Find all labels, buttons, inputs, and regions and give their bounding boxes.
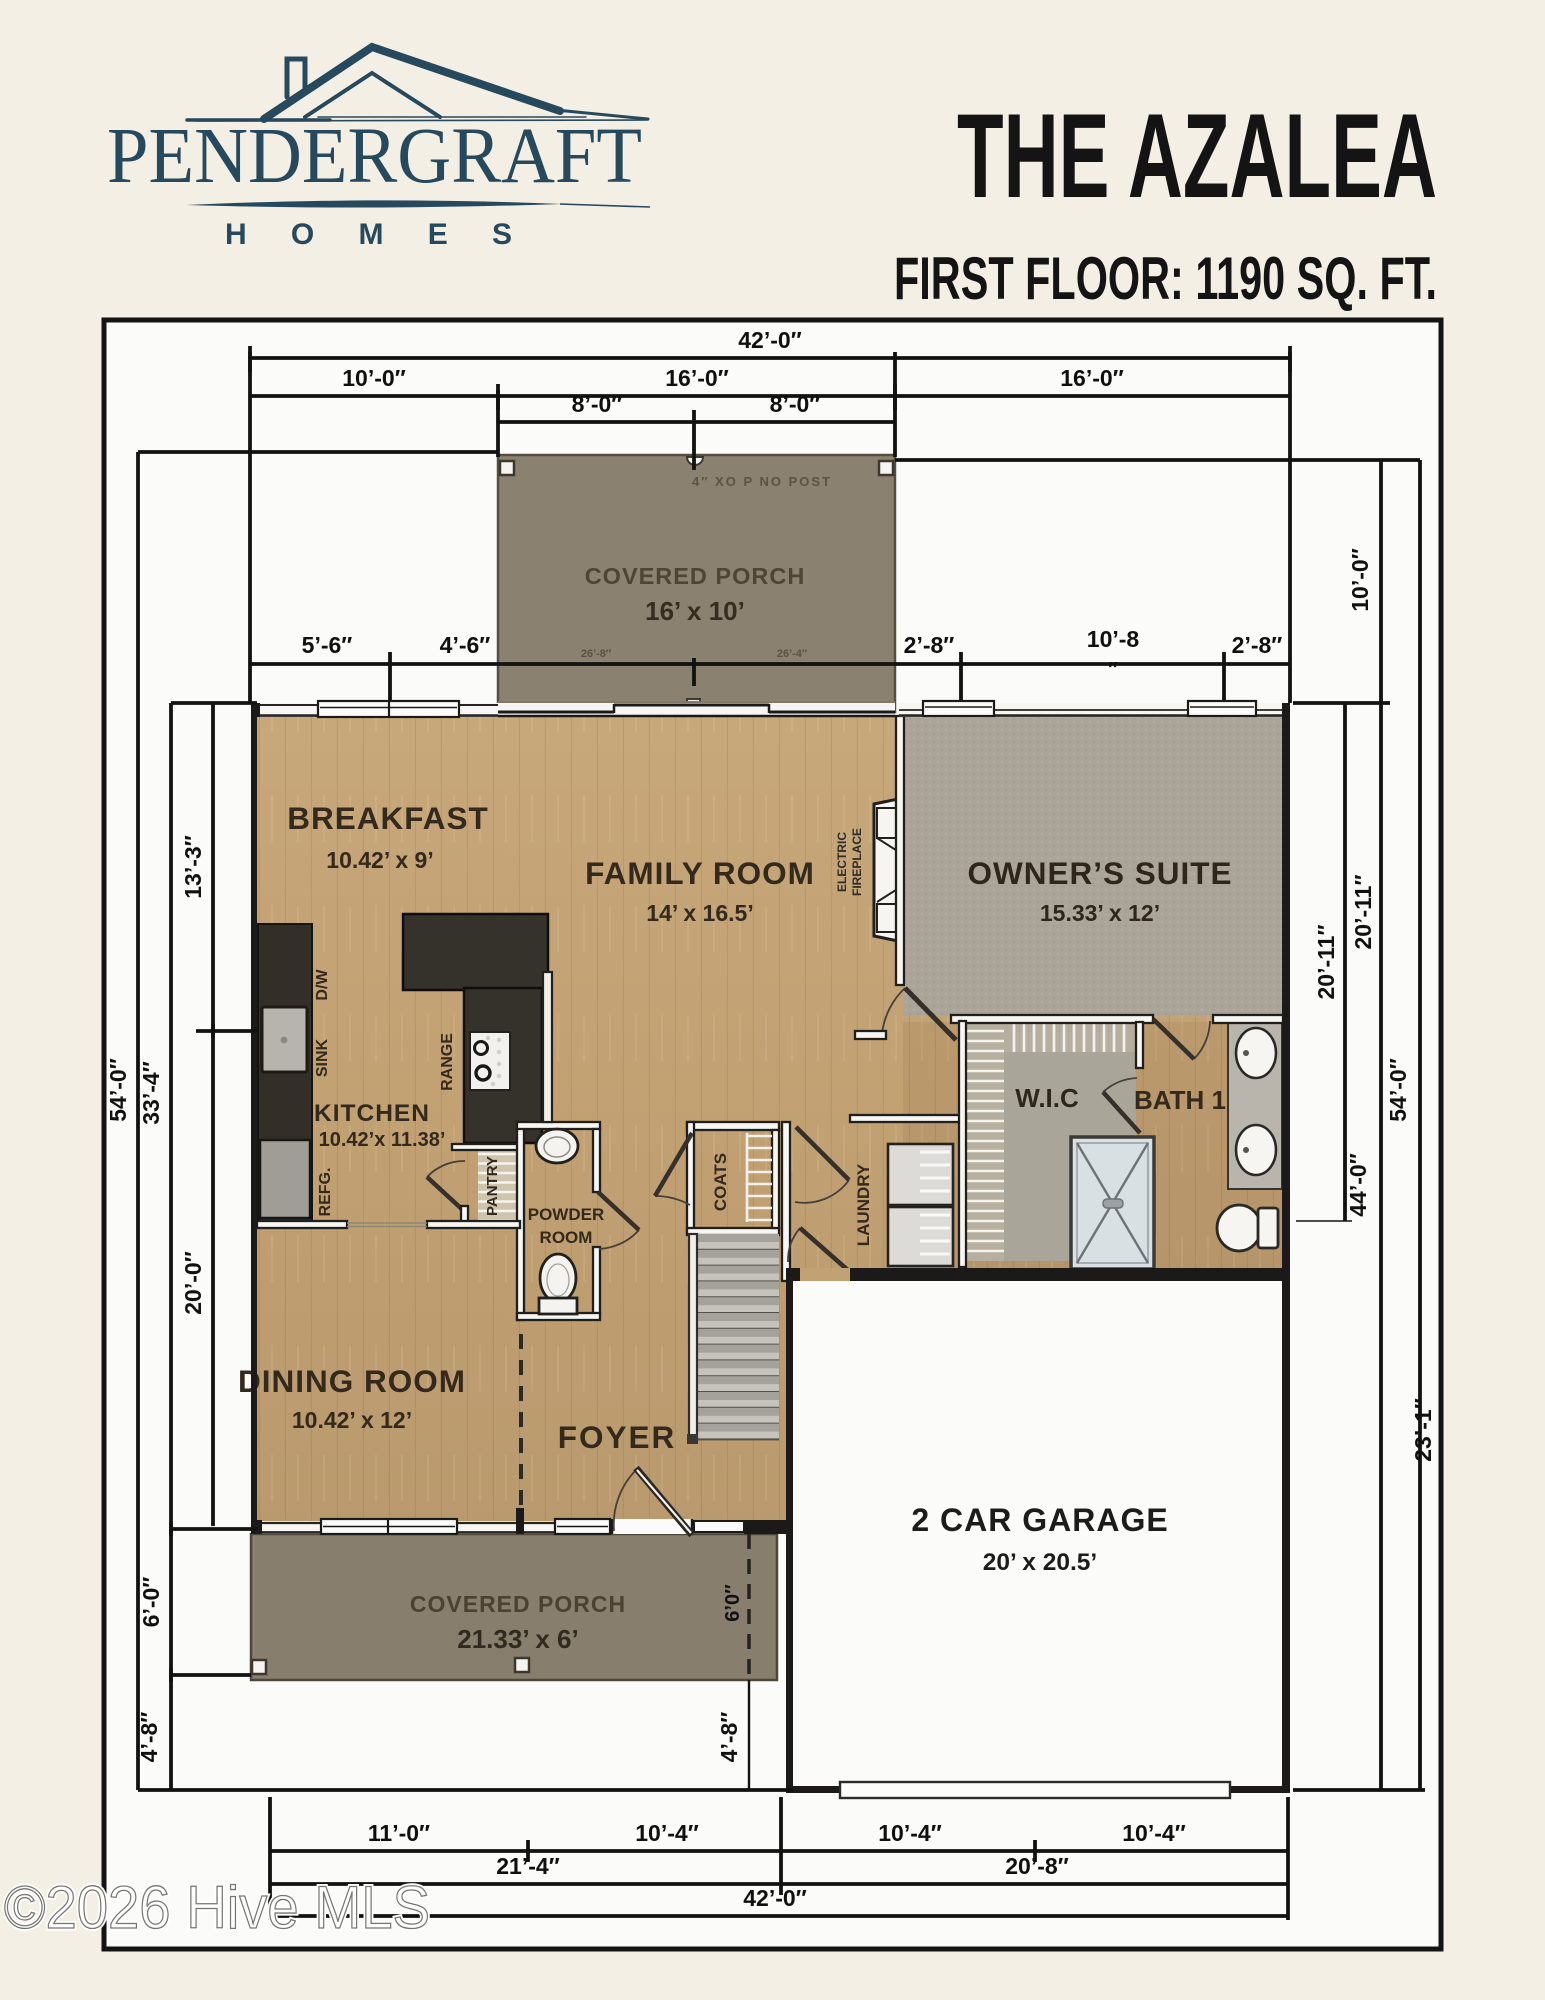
- svg-text:BATH 1: BATH 1: [1134, 1085, 1226, 1115]
- svg-text:FOYER: FOYER: [558, 1419, 677, 1455]
- svg-text:2 CAR GARAGE: 2 CAR GARAGE: [911, 1502, 1168, 1538]
- svg-text:13’-3″: 13’-3″: [180, 835, 206, 898]
- svg-text:ELECTRIC: ELECTRIC: [835, 832, 849, 892]
- svg-text:PENDERGRAFT: PENDERGRAFT: [107, 113, 642, 200]
- svg-text:2’-8″: 2’-8″: [1232, 632, 1283, 658]
- svg-text:10’-0″: 10’-0″: [342, 365, 405, 391]
- svg-text:26’-8″: 26’-8″: [581, 648, 612, 660]
- svg-text:2’-8″: 2’-8″: [904, 632, 955, 658]
- svg-text:4’-8″: 4’-8″: [136, 1712, 162, 1763]
- svg-text:21’-4″: 21’-4″: [496, 1853, 559, 1879]
- svg-text:23’-1″: 23’-1″: [1410, 1398, 1436, 1461]
- svg-text:10’-4″: 10’-4″: [635, 1820, 698, 1846]
- svg-text:4″ XO P NO POST: 4″ XO P NO POST: [692, 474, 832, 489]
- svg-text:54’-0″: 54’-0″: [105, 1058, 131, 1121]
- svg-text:11’-0″: 11’-0″: [368, 1820, 430, 1846]
- svg-text:KITCHEN: KITCHEN: [314, 1100, 430, 1127]
- svg-text:SINK: SINK: [314, 1038, 331, 1077]
- svg-text:20’-8″: 20’-8″: [1005, 1853, 1068, 1879]
- svg-text:10.42’ x 9’: 10.42’ x 9’: [326, 847, 433, 873]
- svg-text:DINING ROOM: DINING ROOM: [238, 1363, 466, 1399]
- svg-text:THE AZALEA: THE AZALEA: [957, 89, 1437, 223]
- svg-text:54’-0″: 54’-0″: [1385, 1058, 1411, 1121]
- svg-text:″: ″: [1108, 659, 1118, 681]
- svg-text:OWNER’S SUITE: OWNER’S SUITE: [967, 855, 1232, 891]
- svg-text:20’-0″: 20’-0″: [180, 1251, 206, 1314]
- svg-text:16’-0″: 16’-0″: [665, 365, 728, 391]
- svg-text:COATS: COATS: [711, 1153, 730, 1211]
- svg-text:COVERED PORCH: COVERED PORCH: [410, 1591, 626, 1617]
- svg-text:44’-0″: 44’-0″: [1345, 1153, 1371, 1216]
- svg-text:14’ x 16.5’: 14’ x 16.5’: [646, 900, 753, 926]
- svg-text:FIRST FLOOR: 1190 SQ. FT.: FIRST FLOOR: 1190 SQ. FT.: [894, 245, 1437, 312]
- svg-text:21.33’ x 6’: 21.33’ x 6’: [457, 1624, 578, 1654]
- svg-text:16’-0″: 16’-0″: [1060, 365, 1123, 391]
- svg-text:10’-4″: 10’-4″: [1122, 1820, 1185, 1846]
- svg-text:REFG.: REFG.: [317, 1168, 334, 1217]
- svg-text:6’-0″: 6’-0″: [138, 1577, 164, 1628]
- svg-text:20’-11″: 20’-11″: [1313, 925, 1339, 1000]
- svg-text:15.33’ x 12’: 15.33’ x 12’: [1040, 900, 1160, 926]
- svg-text:FIREPLACE: FIREPLACE: [850, 828, 864, 896]
- svg-text:ROOM: ROOM: [540, 1228, 593, 1247]
- svg-text:33’-4″: 33’-4″: [138, 1061, 164, 1124]
- svg-text:D/W: D/W: [314, 969, 331, 1001]
- svg-text:26’-4″: 26’-4″: [777, 648, 808, 660]
- svg-text:RANGE: RANGE: [439, 1033, 456, 1091]
- svg-text:10’-4″: 10’-4″: [878, 1820, 941, 1846]
- svg-text:20’-11″: 20’-11″: [1350, 875, 1376, 950]
- svg-text:10’-8: 10’-8: [1087, 626, 1140, 652]
- svg-text:6’0″: 6’0″: [722, 1584, 744, 1622]
- svg-text:W.I.C: W.I.C: [1015, 1083, 1079, 1113]
- svg-text:POWDER: POWDER: [528, 1205, 605, 1224]
- svg-text:10.42’x 11.38’: 10.42’x 11.38’: [319, 1129, 446, 1151]
- svg-text:10.42’ x 12’: 10.42’ x 12’: [292, 1407, 412, 1433]
- svg-text:20’ x 20.5’: 20’ x 20.5’: [983, 1549, 1097, 1576]
- svg-text:BREAKFAST: BREAKFAST: [287, 800, 489, 836]
- svg-text:5’-6″: 5’-6″: [302, 632, 353, 658]
- svg-text:42’-0″: 42’-0″: [743, 1885, 806, 1911]
- svg-text:16’ x 10’: 16’ x 10’: [645, 596, 745, 626]
- svg-text:4’-8″: 4’-8″: [716, 1712, 742, 1763]
- svg-text:LAUNDRY: LAUNDRY: [854, 1163, 873, 1246]
- svg-text:FAMILY ROOM: FAMILY ROOM: [585, 855, 815, 891]
- svg-text:8’-0″: 8’-0″: [572, 391, 623, 417]
- svg-text:10’-0″: 10’-0″: [1347, 548, 1373, 611]
- svg-text:PANTRY: PANTRY: [484, 1156, 501, 1216]
- svg-text:©2026 Hive MLS: ©2026 Hive MLS: [4, 1874, 430, 1941]
- svg-text:COVERED PORCH: COVERED PORCH: [585, 563, 806, 589]
- svg-text:4’-6″: 4’-6″: [440, 632, 491, 658]
- svg-text:42’-0″: 42’-0″: [738, 327, 801, 353]
- svg-text:8’-0″: 8’-0″: [770, 391, 821, 417]
